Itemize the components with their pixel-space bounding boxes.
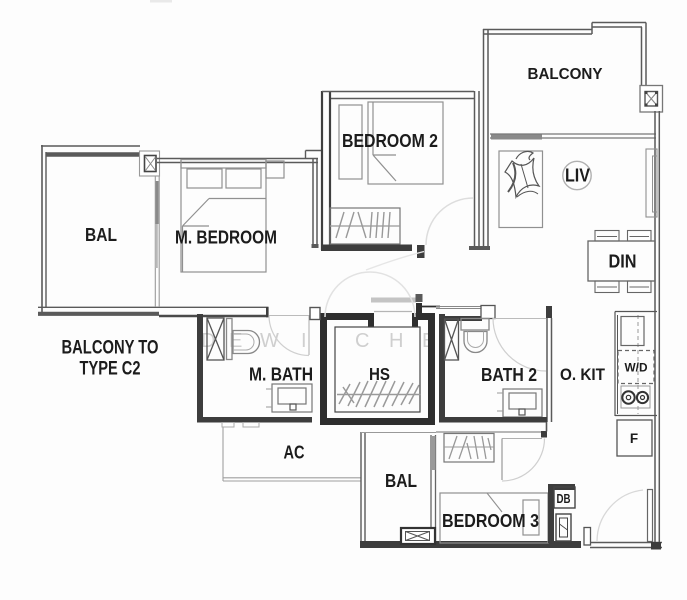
svg-text:O. KIT: O. KIT [560,365,606,384]
svg-text:BAL: BAL [85,225,117,245]
svg-text:I: I [301,330,307,352]
svg-text:F: F [630,431,638,446]
svg-text:M. BEDROOM: M. BEDROOM [175,228,277,248]
svg-text:BALCONY: BALCONY [528,66,603,83]
svg-text:E: E [229,330,242,352]
svg-text:TYPE C2: TYPE C2 [80,359,141,380]
svg-text:AC: AC [284,443,305,463]
svg-text:BATH 2: BATH 2 [481,365,537,385]
svg-text:LIV: LIV [565,166,590,186]
svg-text:BAL: BAL [385,471,417,491]
svg-text:DB: DB [557,492,571,506]
svg-text:BEDROOM 2: BEDROOM 2 [342,131,438,151]
svg-text:C: C [355,330,369,352]
svg-text:DIN: DIN [609,251,637,272]
svg-text:BALCONY TO: BALCONY TO [62,338,159,359]
svg-text:M. BATH: M. BATH [249,365,313,385]
svg-text:W/D: W/D [625,361,648,375]
svg-text:H: H [389,330,403,352]
svg-text:HS: HS [369,364,390,384]
svg-text:W: W [260,330,279,352]
svg-text:BEDROOM 3: BEDROOM 3 [442,511,539,531]
